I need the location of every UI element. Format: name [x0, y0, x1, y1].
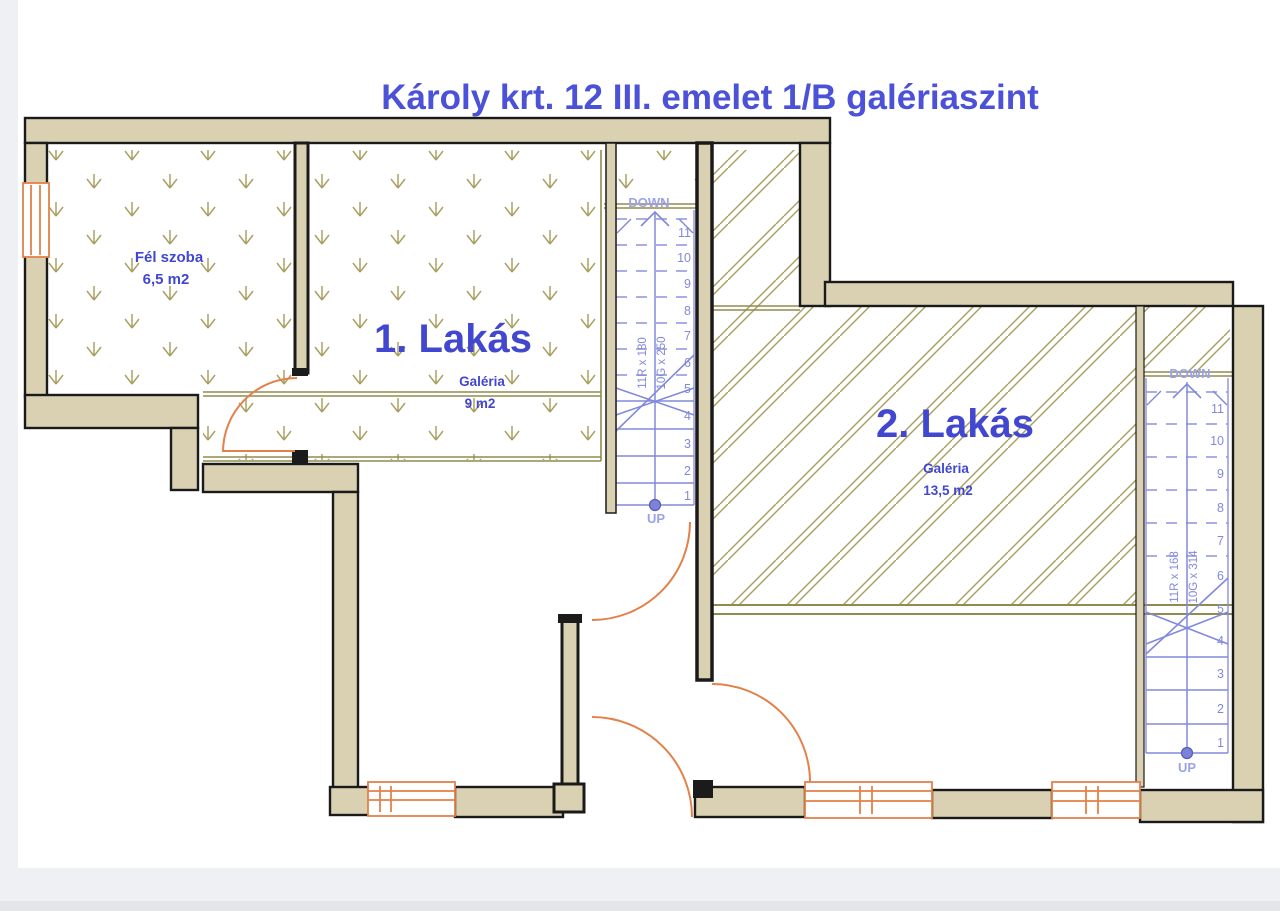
wall-left-step [171, 428, 198, 490]
window-bottom-a [368, 782, 455, 816]
stair-right-down-label: DOWN [1169, 366, 1210, 381]
wall-hall-top [203, 464, 358, 492]
wall-pier-a [330, 787, 370, 815]
step-number: 5 [684, 382, 691, 396]
jamb-bottom-door [693, 780, 713, 798]
step-number: 1 [684, 489, 691, 503]
jamb-felszoba-top [292, 368, 308, 376]
wall-corner-bottom-right [1140, 790, 1263, 822]
step-number: 9 [1217, 467, 1224, 481]
step-number: 4 [684, 409, 691, 423]
hatch-lakas2-galeria [712, 306, 1136, 604]
wall-stub [562, 618, 578, 788]
stair-left-down-label: DOWN [628, 195, 669, 210]
window-bottom-c [1052, 782, 1140, 818]
step-number: 7 [1217, 534, 1224, 548]
room-lakas1-name: 1. Lakás [374, 317, 532, 361]
wall-stair-right-partition [1136, 306, 1144, 787]
stair-left-up-label: UP [647, 511, 665, 526]
step-number: 3 [1217, 667, 1224, 681]
stair-right-riser-spec: 11R x 168 [1169, 551, 1181, 603]
step-number: 8 [1217, 501, 1224, 515]
window-bottom-b [805, 782, 932, 818]
wall-west-lower [333, 492, 358, 789]
room-lakas2-gallery-area: 13,5 m2 [923, 483, 973, 498]
room-lakas1-gallery: Galéria [459, 374, 505, 389]
wall-stub-foot [554, 784, 584, 812]
step-number: 1 [1217, 736, 1224, 750]
room-felszoba-area: 6,5 m2 [143, 271, 190, 288]
step-number: 8 [684, 304, 691, 318]
room-felszoba-name: Fél szoba [135, 249, 204, 266]
step-number: 4 [1217, 634, 1224, 648]
floor-plan-drawing: Károly krt. 12 III. emelet 1/B galériasz… [0, 0, 1280, 911]
room-lakas2-gallery: Galéria [923, 461, 969, 476]
wall-left-lower [25, 256, 47, 397]
step-number: 10 [1210, 434, 1224, 448]
wall-pier-d [932, 790, 1052, 818]
bottom-edge-band [0, 901, 1280, 911]
step-number: 10 [677, 251, 691, 265]
wall-bottom-b [455, 787, 563, 817]
step-number: 5 [1217, 602, 1224, 616]
stair-left-riser-spec: 11R x 180 [637, 337, 649, 389]
step-number: 2 [1217, 702, 1224, 716]
floor-plan-page: Károly krt. 12 III. emelet 1/B galériasz… [0, 0, 1280, 911]
stair-right-start-node [1182, 748, 1193, 759]
hatch-lakas2-strip [712, 150, 800, 306]
stair-right-going-spec: 10G x 314 [1188, 550, 1200, 604]
wall-felszoba-bottom [25, 395, 198, 428]
wall-left-upper [25, 143, 47, 184]
page-title: Károly krt. 12 III. emelet 1/B galériasz… [381, 78, 1039, 117]
wall-stair-left-partition [606, 143, 616, 513]
stair-right-up-label: UP [1178, 760, 1196, 775]
step-number: 11 [1211, 402, 1224, 416]
wall-lakas2-top [825, 282, 1233, 306]
stair-left-start-node [650, 500, 661, 511]
jamb-felszoba-bottom [292, 450, 308, 464]
step-number: 7 [684, 329, 691, 343]
jamb-stub-cap [558, 614, 582, 623]
room-lakas1-gallery-area: 9 m2 [465, 396, 496, 411]
step-number: 6 [684, 356, 691, 370]
room-lakas2-name: 2. Lakás [876, 402, 1034, 446]
window-left [23, 183, 49, 257]
hatch-stair-right-landing [1144, 306, 1230, 372]
step-number: 9 [684, 277, 691, 291]
wall-top [25, 118, 830, 143]
wall-felszoba-divider [295, 143, 308, 373]
wall-party [697, 143, 712, 680]
step-number: 2 [684, 464, 691, 478]
wall-right [1233, 306, 1263, 822]
step-number: 3 [684, 437, 691, 451]
step-number: 6 [1217, 569, 1224, 583]
step-number: 11 [678, 226, 691, 240]
stair-left-going-spec: 10G x 250 [656, 336, 668, 389]
